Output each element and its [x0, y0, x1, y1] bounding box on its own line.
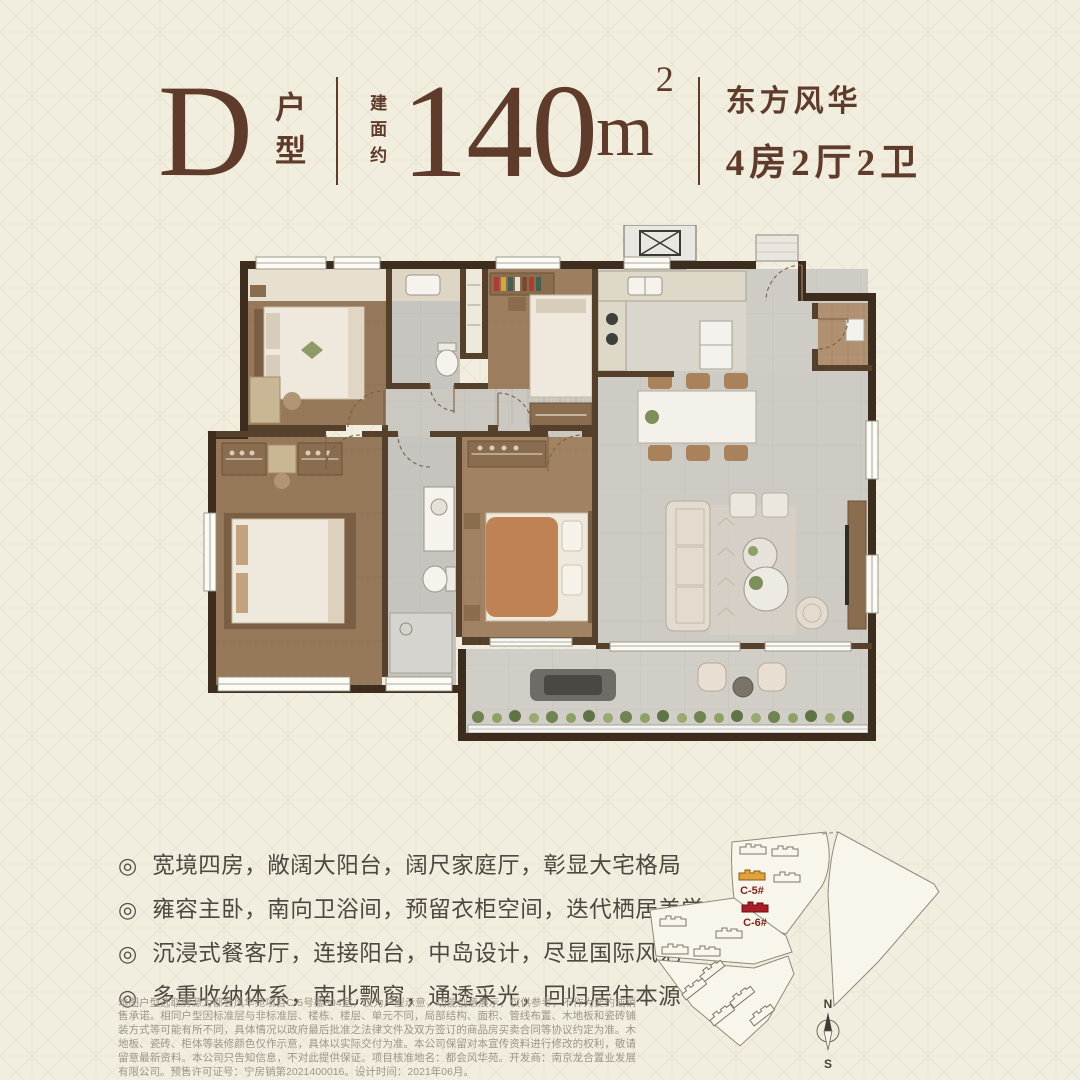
feature-text: 宽境四房，敞阔大阳台，阔尺家庭厅，彰显大宅格局: [152, 854, 681, 879]
feature-item: ◎ 雍容主卧，南向卫浴间，预留衣柜空间，迭代栖居美学: [118, 898, 704, 923]
balcony-sliding-door: [610, 642, 740, 651]
bullet-icon: ◎: [118, 855, 137, 877]
feature-item: ◎ 沉浸式餐客厅，连接阳台，中岛设计，尽显国际风范: [118, 942, 704, 967]
master-bedroom-furniture: [222, 443, 356, 629]
entry-landing: [756, 235, 798, 261]
bedroom1-north-balcony: [248, 269, 386, 301]
floor-plan: [200, 225, 890, 745]
room-config: 4房2厅2卫: [726, 132, 923, 186]
feature-item: ◎ 宽境四房，敞阔大阳台，阔尺家庭厅，彰显大宅格局: [118, 854, 704, 879]
area-number: 140: [401, 64, 596, 198]
site-map: C-5# C-6# N S: [636, 824, 968, 1076]
sofa: [666, 501, 710, 631]
area-superscript: 2: [656, 58, 674, 100]
tv-console: [848, 501, 866, 629]
area-prefix: 建面约: [364, 94, 389, 172]
building-c6-label: C-6#: [743, 917, 767, 929]
header-divider: [336, 77, 338, 185]
balcony-table: [733, 677, 753, 697]
header-divider: [698, 77, 700, 185]
compass-icon: N S: [817, 997, 839, 1071]
compass-north-label: N: [824, 997, 833, 1011]
feature-text: 沉浸式餐客厅，连接阳台，中岛设计，尽显国际风范: [152, 942, 681, 967]
unit-letter: D: [158, 65, 253, 197]
tv: [845, 525, 849, 605]
storage-cabinet: [846, 319, 864, 341]
unit-suffix: 户型: [265, 91, 310, 177]
area-unit: m: [596, 94, 654, 168]
balcony-chair: [698, 663, 726, 691]
disclaimer-text: 本图户型选取房源为都会风华苑项目C-5号楼804室，仅为户型示意，功能创意展示，…: [118, 997, 636, 1080]
coffee-table: [744, 567, 788, 611]
armchair: [796, 597, 828, 629]
compass-south-label: S: [824, 1057, 832, 1071]
feature-text: 雍容主卧，南向卫浴间，预留衣柜空间，迭代栖居美学: [152, 898, 704, 923]
bullet-icon: ◎: [118, 899, 137, 921]
balcony-chair: [758, 663, 786, 691]
building-c5-label: C-5#: [740, 885, 764, 897]
coffee-table: [743, 538, 777, 572]
parcel-outlines: [650, 832, 939, 1046]
bullet-icon: ◎: [118, 943, 137, 965]
closet-niche: [466, 269, 482, 353]
dining-set: [638, 373, 756, 461]
header: D 户型 建面约 140 m 2 东方风华 4房2厅2卫: [0, 64, 1080, 198]
series-name: 东方风华: [726, 76, 923, 120]
